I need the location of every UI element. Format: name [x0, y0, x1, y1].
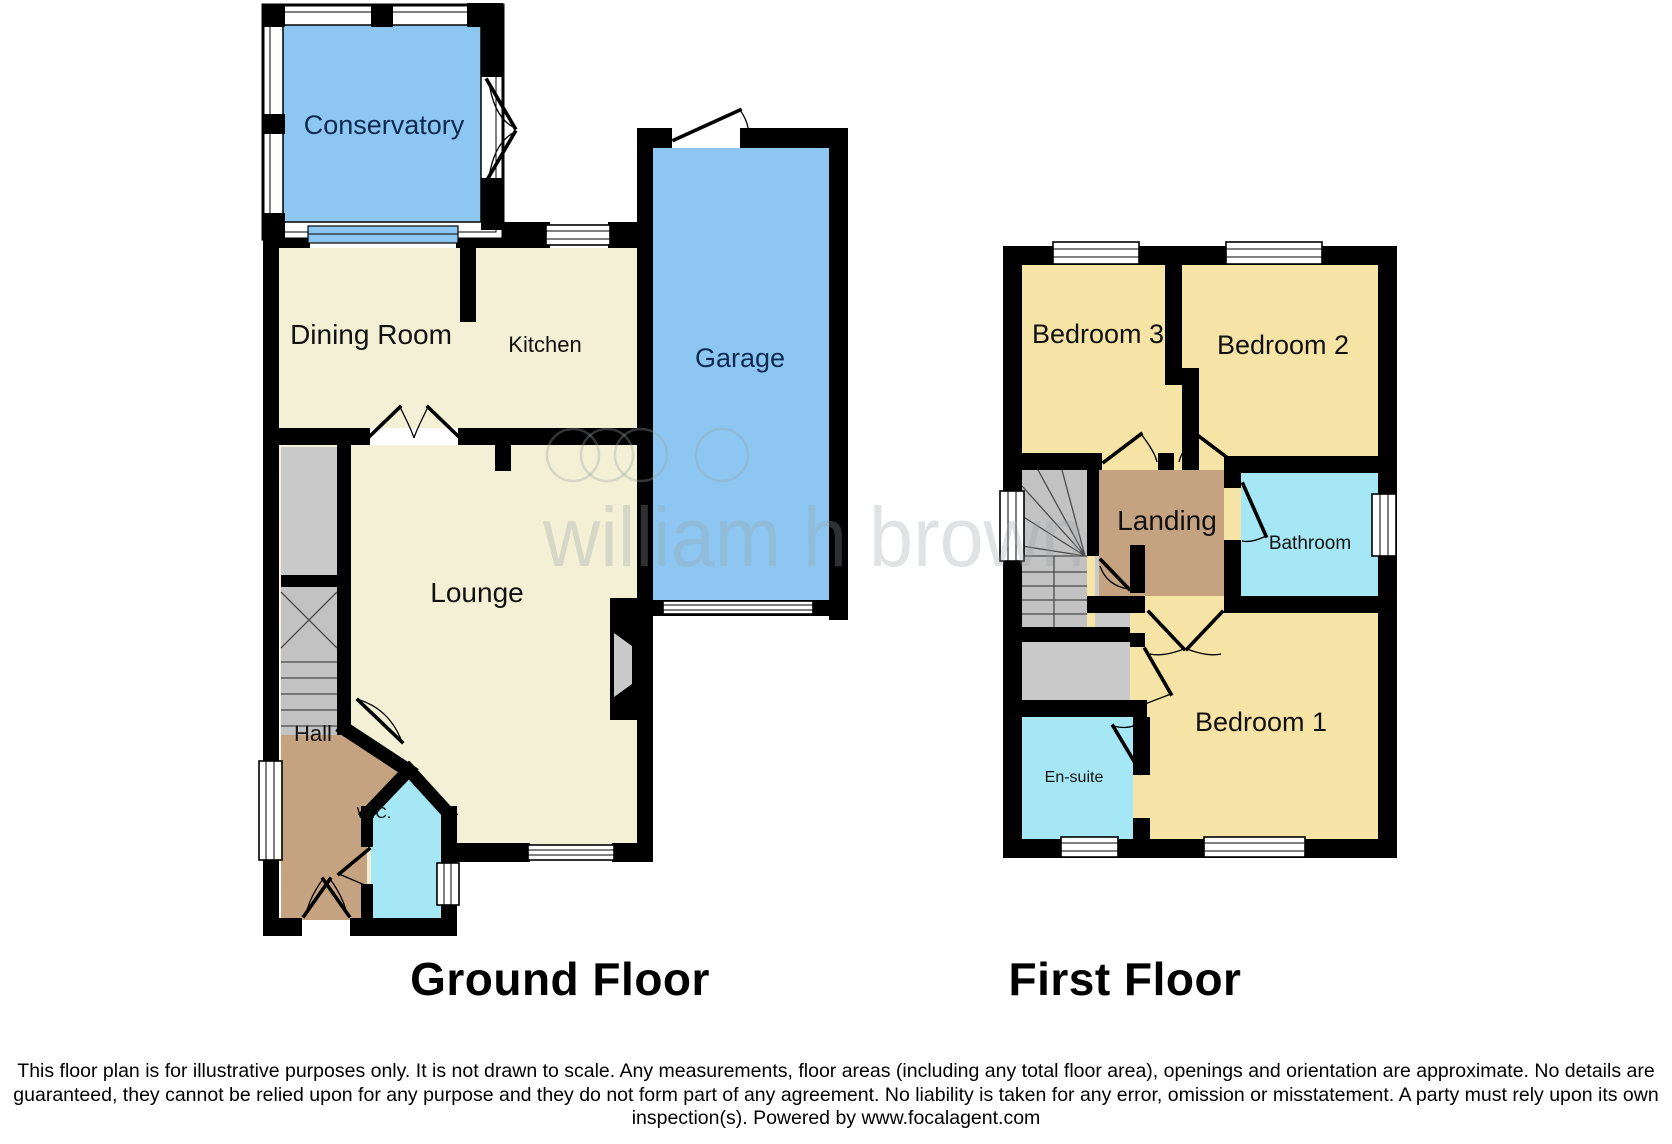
room-label-bedroom3: Bedroom 3	[1032, 319, 1164, 349]
bedroom2-window	[1226, 242, 1322, 264]
floor-title-ground: Ground Floor	[280, 952, 840, 1006]
room-label-lounge: Lounge	[430, 577, 523, 608]
room-label-hall: Hall	[294, 721, 332, 746]
kitchen-window	[546, 225, 610, 245]
lounge-window	[528, 845, 614, 860]
wc-window	[437, 863, 459, 905]
room-label-conservatory: Conservatory	[304, 110, 465, 140]
room-label-bathroom: Bathroom	[1269, 533, 1351, 554]
room-label-ensuite: En-suite	[1045, 769, 1104, 786]
room-label-bedroom2: Bedroom 2	[1217, 330, 1349, 360]
staircase-ground	[281, 587, 337, 735]
ground-floor-plan: Conservatory Dining Room Kitchen Garage …	[259, 3, 848, 936]
storage-closet	[281, 447, 337, 575]
room-label-bedroom1: Bedroom 1	[1195, 707, 1327, 737]
watermark-text: william h brown	[542, 490, 1085, 584]
garage-door-leaf	[674, 110, 740, 140]
floor-title-first: First Floor	[905, 952, 1345, 1006]
cupboard-floor	[1022, 642, 1130, 700]
room-label-landing: Landing	[1117, 505, 1217, 536]
room-label-garage: Garage	[695, 343, 785, 373]
room-label-wc: W.C.	[357, 805, 392, 822]
room-label-dining: Dining Room	[290, 319, 452, 350]
hall-window	[259, 761, 282, 860]
ensuite-window	[1061, 837, 1118, 857]
bedroom3-window	[1053, 242, 1139, 264]
bathroom-window	[1372, 494, 1396, 556]
garage-window	[663, 601, 813, 614]
room-label-kitchen: Kitchen	[508, 332, 581, 357]
bedroom1-window	[1204, 837, 1305, 857]
floorplan-page: Conservatory Dining Room Kitchen Garage …	[0, 0, 1672, 1144]
disclaimer-text: This floor plan is for illustrative purp…	[6, 1060, 1666, 1131]
